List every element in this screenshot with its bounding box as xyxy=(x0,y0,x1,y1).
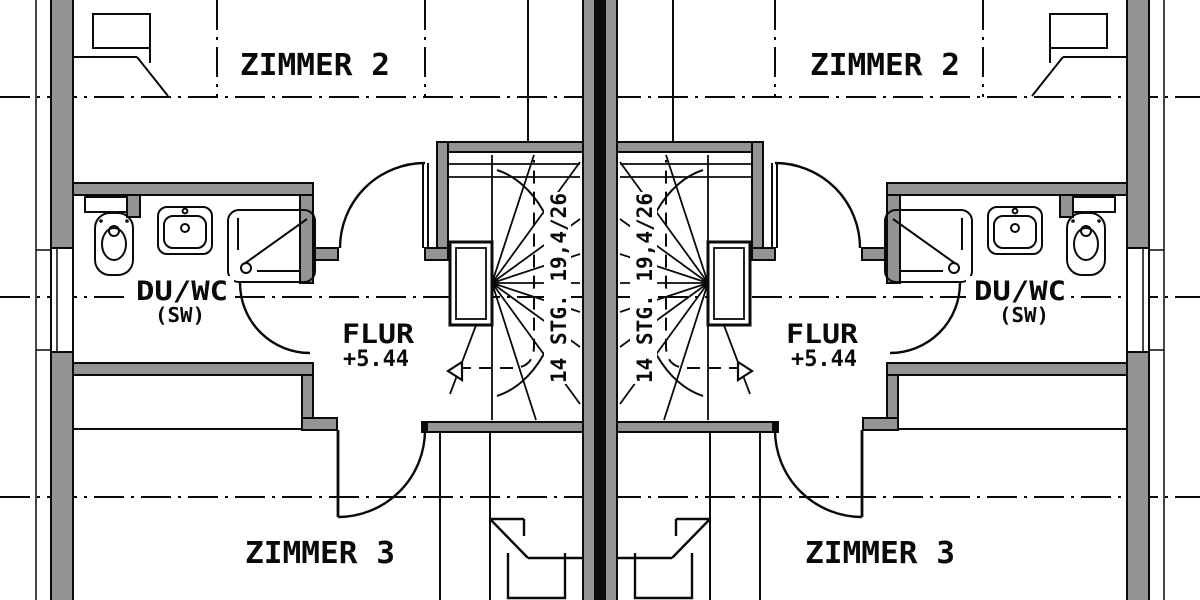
door-swing-flur-left xyxy=(340,163,425,248)
level-label-flur-left: +5.44 xyxy=(343,347,409,372)
room-note-bath-left: (SW) xyxy=(155,303,205,327)
dormer-window-right xyxy=(617,519,710,598)
stair-direction-arrow-left-icon xyxy=(448,362,462,380)
stair-direction-arrow-right-icon xyxy=(738,362,752,380)
level-label-flur-right: +5.44 xyxy=(791,347,857,372)
room-label-zimmer2-right: ZIMMER 2 xyxy=(810,48,960,83)
room-label-zimmer2-left: ZIMMER 2 xyxy=(240,48,390,83)
bathroom-fixtures-right xyxy=(885,207,1105,282)
floor-plan: 14 STG. 19,4/26 14 STG. 19,4/26 xyxy=(0,0,1200,600)
bathroom-fixtures-left xyxy=(95,207,315,282)
stair-landing-block-left-inner xyxy=(456,248,486,319)
party-wall xyxy=(583,0,617,600)
exterior-wall-right-upper xyxy=(1127,0,1149,248)
exterior-wall-left-lower xyxy=(51,352,73,600)
room-note-bath-right: (SW) xyxy=(999,303,1049,327)
window-left-sill-ticks xyxy=(36,250,51,350)
floor-plan-canvas: 14 STG. 19,4/26 14 STG. 19,4/26 xyxy=(0,0,1200,600)
window-left-opening xyxy=(51,248,73,352)
sink-icon xyxy=(158,207,212,254)
room-label-zimmer3-right: ZIMMER 3 xyxy=(805,536,955,571)
room-label-zimmer3-left: ZIMMER 3 xyxy=(245,536,395,571)
window-left xyxy=(36,248,73,352)
toilet-icon xyxy=(1067,213,1105,275)
bed-icon xyxy=(1032,14,1127,96)
cistern-left xyxy=(85,197,127,212)
exterior-wall-left-upper xyxy=(51,0,73,248)
toilet-icon xyxy=(95,213,133,275)
door-swing-bath-right xyxy=(890,283,960,353)
cistern-right xyxy=(1073,197,1115,212)
sink-icon xyxy=(988,207,1042,254)
window-right xyxy=(1127,248,1164,352)
bed-icon xyxy=(73,14,168,96)
door-swing-zimmer3-right xyxy=(775,430,862,517)
stair-label-left: 14 STG. 19,4/26 xyxy=(547,193,571,383)
door-swing-zimmer3-left xyxy=(338,430,425,517)
door-leaf-flur-right xyxy=(772,163,777,248)
door-swing-bath-left xyxy=(240,283,310,353)
stair-label-right: 14 STG. 19,4/26 xyxy=(633,193,657,383)
door-leaf-flur-left xyxy=(423,163,428,248)
stair-right: 14 STG. 19,4/26 xyxy=(620,155,752,420)
door-swing-flur-right xyxy=(775,163,860,248)
window-right-sill-ticks xyxy=(1149,250,1164,350)
stair-left: 14 STG. 19,4/26 xyxy=(448,155,580,420)
stair-landing-block-right-inner xyxy=(714,248,744,319)
party-wall-core xyxy=(594,0,606,600)
dormer-window-left xyxy=(490,519,583,598)
exterior-wall-right-lower xyxy=(1127,352,1149,600)
room-label-flur-right: FLUR xyxy=(786,319,859,350)
room-label-flur-left: FLUR xyxy=(342,319,415,350)
window-right-opening xyxy=(1127,248,1149,352)
